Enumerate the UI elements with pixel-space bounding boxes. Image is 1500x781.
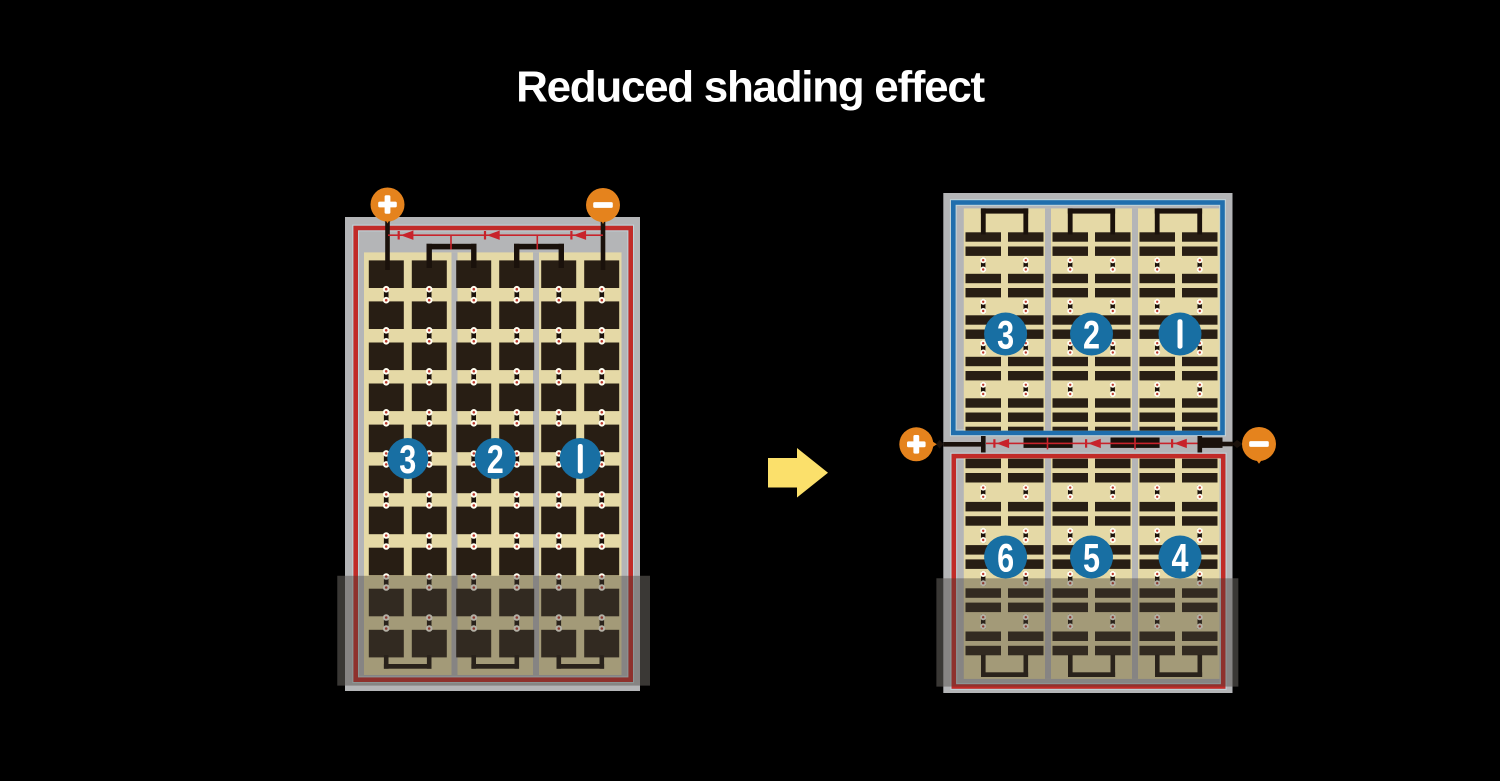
svg-text:6: 6 bbox=[997, 537, 1014, 581]
svg-text:Reduced shading effect: Reduced shading effect bbox=[516, 63, 985, 112]
svg-text:2: 2 bbox=[487, 438, 504, 482]
svg-text:5: 5 bbox=[1083, 537, 1100, 581]
svg-text:3: 3 bbox=[399, 438, 416, 482]
svg-text:3: 3 bbox=[997, 314, 1014, 358]
svg-text:4: 4 bbox=[1172, 537, 1190, 581]
svg-text:2: 2 bbox=[1083, 314, 1100, 358]
